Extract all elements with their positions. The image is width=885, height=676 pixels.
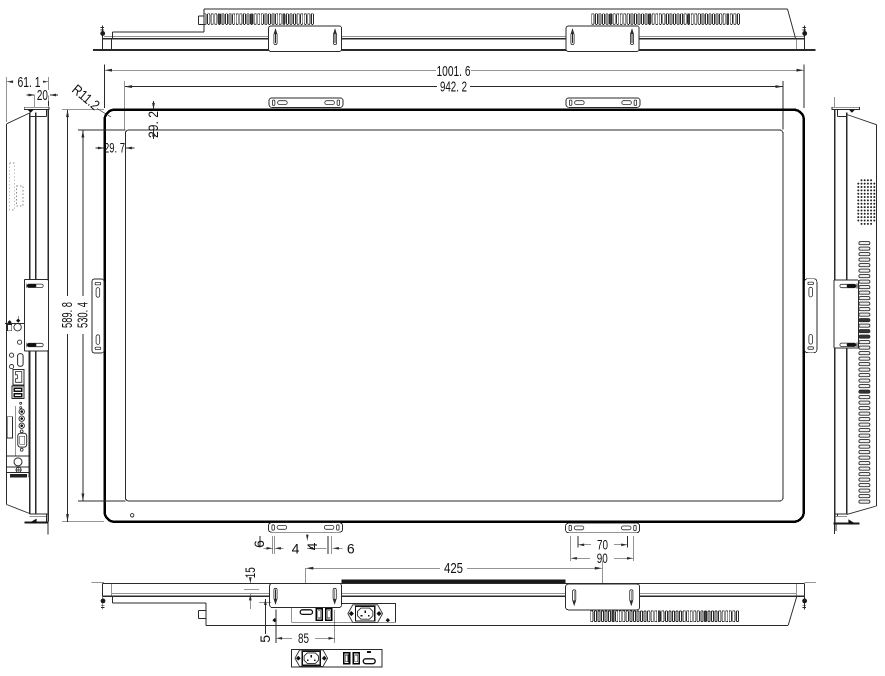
svg-text:589. 8: 589. 8 xyxy=(60,302,76,328)
svg-text:4: 4 xyxy=(304,542,320,550)
svg-text:4: 4 xyxy=(292,541,300,557)
svg-text:29. 2: 29. 2 xyxy=(145,111,161,138)
svg-text:85: 85 xyxy=(298,630,309,646)
svg-text:5: 5 xyxy=(257,635,273,643)
svg-text:15: 15 xyxy=(242,567,258,578)
svg-text:6: 6 xyxy=(251,540,267,548)
svg-text:530. 4: 530. 4 xyxy=(75,302,91,328)
svg-text:942. 2: 942. 2 xyxy=(440,79,467,96)
svg-text:1001. 6: 1001. 6 xyxy=(437,63,471,80)
svg-text:6: 6 xyxy=(347,541,355,557)
svg-text:425: 425 xyxy=(444,560,463,577)
svg-text:29. 7: 29. 7 xyxy=(104,140,125,156)
svg-text:20: 20 xyxy=(37,88,48,104)
